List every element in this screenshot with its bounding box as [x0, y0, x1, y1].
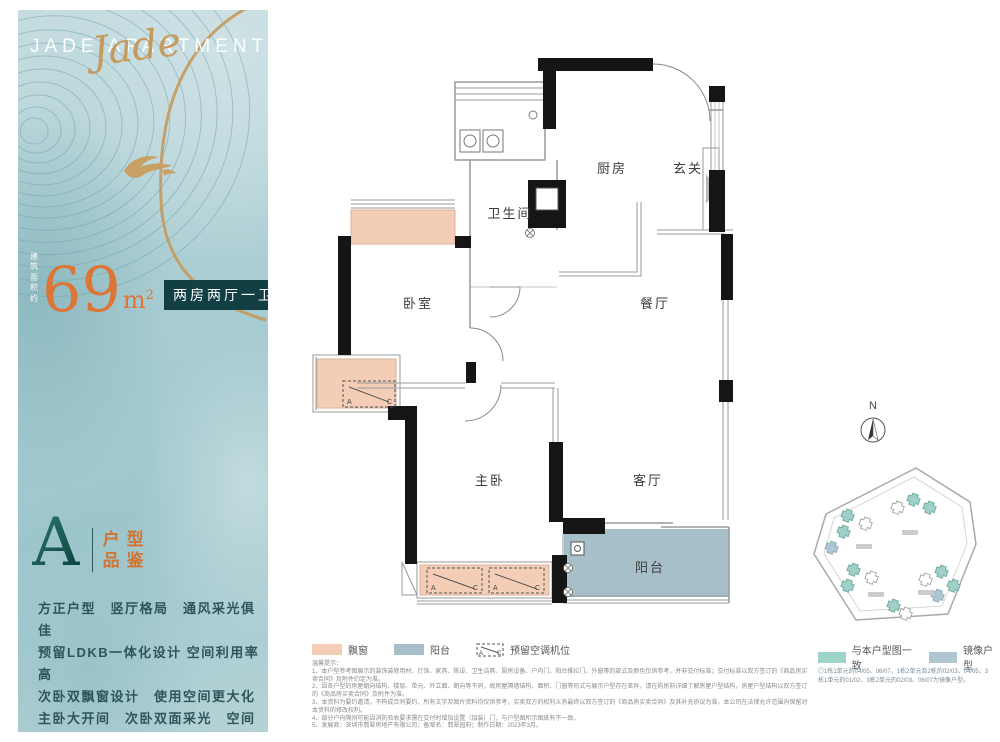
- area-summary: 建筑 面积约 69 m2 两房两厅一卫: [30, 252, 268, 318]
- north-arrow-icon: N: [845, 398, 901, 450]
- room-label-bathroom: 卫生间: [487, 206, 532, 221]
- disclaimer-notes: 温馨提示： 1、本户型参考图展示的装饰装修用材、灯饰、家具、陈设、卫生洁具、厨房…: [312, 661, 812, 731]
- kitchen-counter: [559, 202, 641, 276]
- svg-text:N: N: [869, 400, 877, 412]
- grade-label: 户型 品鉴: [103, 529, 151, 572]
- feature-item: 方正户型 竖厅格局 通风采光俱佳: [38, 598, 268, 642]
- bay-window-bottom-fill: [420, 565, 549, 595]
- room-label-foyer: 玄关: [673, 161, 703, 176]
- appliance-icons: [460, 111, 537, 152]
- room-label-dining: 餐厅: [640, 296, 670, 311]
- ac-legend-icon: A C: [476, 643, 504, 657]
- note-item: 2、因各户型的房屋朝向结构、楼层、单元、外立面、朝向等不同，故房屋隔墙结构、面积…: [312, 684, 812, 700]
- bay-window-top-fill: [351, 210, 455, 244]
- feature-list: 方正户型 竖厅格局 通风采光俱佳 预留LDKB一体化设计 空间利用率高 次卧双飘…: [38, 598, 268, 732]
- svg-text:A: A: [431, 585, 436, 592]
- note-item: 3、本资料为要约邀请，不构成合同要约，所有文字及图片资料均仅供参考，买卖双方的权…: [312, 700, 812, 716]
- svg-text:A: A: [347, 399, 352, 406]
- area-value: 69: [42, 263, 121, 318]
- bay-window-legend-label: 飘窗: [348, 642, 368, 657]
- brand-panel: JADE APARTMENTS Jade 建筑 面积约 69 m2 两房两厅一卫…: [18, 10, 268, 732]
- plan-grade: A 户型 品鉴: [32, 510, 151, 576]
- site-plan: [798, 452, 993, 630]
- svg-text:A: A: [493, 585, 498, 592]
- ac-markers: [343, 381, 544, 593]
- room-label-balcony: 阳台: [635, 560, 665, 575]
- feature-item: 预留LDKB一体化设计 空间利用率高: [38, 642, 268, 686]
- note-item: 5、发展商：深圳市翡翠房地产有限公司；备案名：翡翠园府；制作日期：2023年3月…: [312, 723, 812, 731]
- room-label-master: 主卧: [475, 473, 505, 488]
- same-plan-swatch: [818, 652, 846, 663]
- balcony-swatch: [394, 644, 424, 655]
- svg-text:C: C: [387, 399, 392, 406]
- note-item: 1、本户型参考图展示的装饰装修用材、灯饰、家具、陈设、卫生洁具、厨房设备、户内门…: [312, 669, 812, 685]
- black-walls: [338, 58, 733, 603]
- grade-divider: [92, 528, 93, 572]
- room-label-bedroom: 卧室: [403, 296, 433, 311]
- mirror-units-note: ◎1栋1单元的04/05、06/07，1栋2单元及2栋的02/03、04/05，…: [818, 668, 990, 685]
- plan-grade-letter: A: [32, 510, 80, 576]
- ac-marker-letters: A C A C A C: [347, 399, 540, 592]
- thin-walls: [313, 82, 733, 604]
- svg-text:C: C: [473, 585, 478, 592]
- layout-badge: 两房两厅一卫: [164, 280, 268, 310]
- svg-text:C: C: [535, 585, 540, 592]
- svg-text:A: A: [479, 651, 483, 657]
- feature-item: 次卧双飘窗设计 使用空间更大化: [38, 686, 268, 708]
- feature-item: 主卧大开间 次卧双面采光 空间敞亮: [38, 708, 268, 732]
- area-unit: m2: [123, 286, 154, 314]
- ac-legend-label: 预留空调机位: [510, 642, 570, 657]
- room-label-living: 客厅: [633, 473, 663, 488]
- mirrored-swatch: [929, 652, 957, 663]
- area-prefix: 建筑 面积约: [30, 252, 39, 304]
- flyer-page: JADE APARTMENTS Jade 建筑 面积约 69 m2 两房两厅一卫…: [0, 0, 1000, 742]
- notes-title: 温馨提示：: [312, 661, 812, 669]
- svg-text:C: C: [497, 651, 502, 657]
- bay-window-swatch: [312, 644, 342, 655]
- floor-plan: A C A C A C 厨房 玄关 卫生间 卧室 餐厅 主卧 客厅 阳台: [305, 50, 775, 630]
- plan-legend: 飘窗 阳台 A C 预留空调机位: [312, 642, 570, 657]
- stove-icon: [536, 188, 558, 210]
- balcony-legend-label: 阳台: [430, 642, 450, 657]
- door-arcs: [465, 64, 710, 421]
- room-label-kitchen: 厨房: [597, 161, 627, 176]
